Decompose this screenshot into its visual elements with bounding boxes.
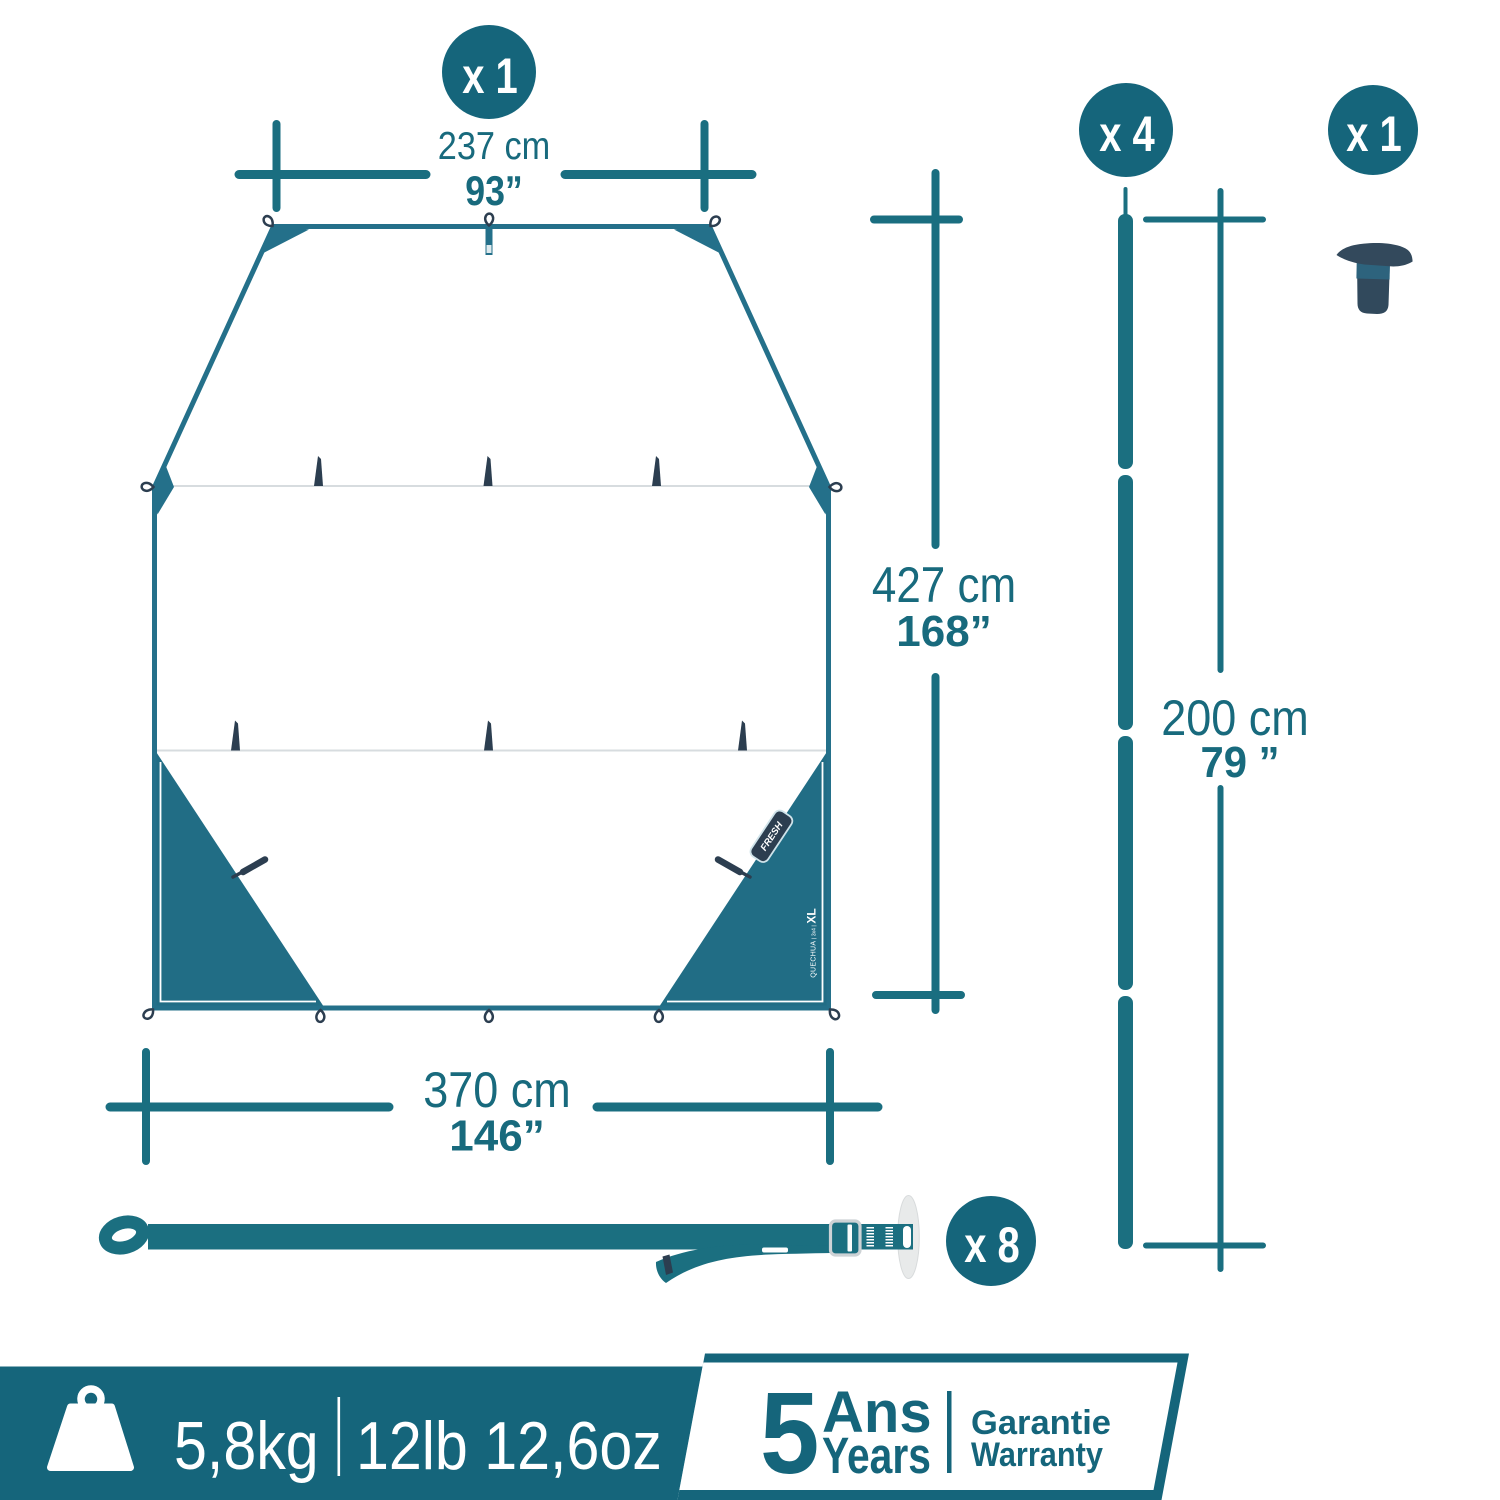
svg-text:5: 5 (760, 1368, 819, 1498)
svg-text:79 ”: 79 ” (1200, 738, 1279, 787)
svg-text:x 4: x 4 (1099, 106, 1155, 162)
svg-text:Years: Years (822, 1427, 931, 1484)
svg-text:427 cm: 427 cm (872, 556, 1016, 612)
svg-text:Warranty: Warranty (971, 1434, 1103, 1473)
svg-text:168”: 168” (896, 607, 991, 656)
svg-text:x 1: x 1 (1346, 106, 1402, 162)
svg-text:146”: 146” (449, 1112, 544, 1161)
svg-text:5,8kg: 5,8kg (174, 1407, 319, 1484)
svg-text:93”: 93” (465, 168, 523, 214)
svg-text:12lb 12,6oz: 12lb 12,6oz (356, 1407, 662, 1484)
svg-text:x 1: x 1 (462, 48, 518, 104)
svg-text:370 cm: 370 cm (423, 1063, 571, 1119)
svg-text:x 8: x 8 (964, 1217, 1020, 1273)
svg-text:237 cm: 237 cm (438, 124, 551, 168)
